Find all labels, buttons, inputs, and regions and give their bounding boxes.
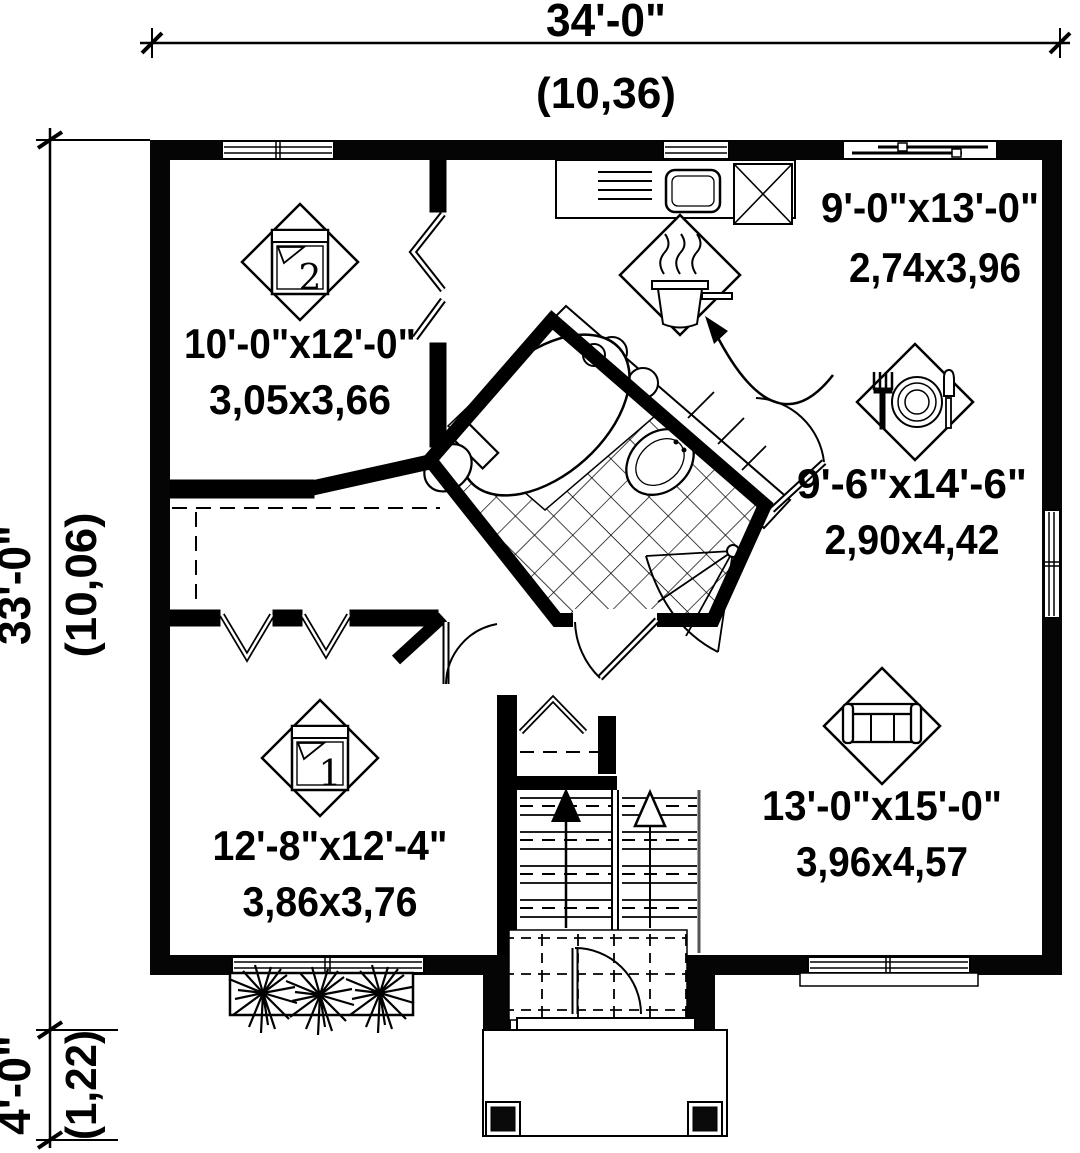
porch-post: [688, 1102, 722, 1136]
bedroom2-window: [222, 141, 334, 159]
pot-rim: [652, 281, 708, 289]
kitchen-label-arrow: [705, 316, 833, 404]
bedroom1-size-imperial: 12'-8"x12'-4": [213, 822, 448, 869]
stove-icon: [734, 164, 792, 224]
kitchen-icon: [620, 215, 740, 335]
dim-left-metric: (10,06): [57, 513, 106, 658]
staircase: [497, 695, 699, 957]
kitchen-sliding-window: [843, 141, 997, 159]
entry-vestibule: [509, 930, 687, 1020]
sofa: [843, 704, 921, 743]
floor-plan-page: 34'-0" (10,36) 33'-0" (10,06) 4'-0" (1,2…: [0, 0, 1080, 1153]
stair-up-arrow-open: [635, 792, 665, 928]
living-size-imperial: 13'-0"x15'-0": [762, 782, 1002, 829]
dining-size-metric: 2,90x4,42: [825, 516, 1000, 563]
dining-icon: [857, 344, 973, 460]
dim-top-imperial: 34'-0": [546, 0, 666, 46]
kitchen-size-imperial: 9'-0"x13'-0": [821, 184, 1039, 231]
front-porch: [483, 1018, 727, 1136]
dim-bottom-left-imperial: 4'-0": [0, 1035, 40, 1135]
dining-size-imperial: 9'-6"x14'-6": [797, 460, 1027, 507]
basement-stair-door: [521, 699, 585, 732]
floor-plan-drawing: 34'-0" (10,36) 33'-0" (10,06) 4'-0" (1,2…: [0, 0, 1080, 1153]
porch-step: [517, 1018, 695, 1030]
bedroom2-door: [413, 214, 443, 338]
dim-bottom-left-metric: (1,22): [57, 1030, 106, 1140]
bedroom1-door: [446, 622, 497, 684]
living-window: [800, 957, 978, 986]
bedroom1-size-metric: 3,86x3,76: [243, 878, 418, 925]
bedroom1-number: 1: [319, 754, 342, 795]
living-size-metric: 3,96x4,57: [796, 838, 968, 885]
living-icon: [824, 668, 940, 784]
window-sill: [800, 973, 978, 986]
bathroom-door: [573, 609, 657, 678]
dim-top-metric: (10,36): [536, 69, 676, 118]
bedroom2-number: 2: [299, 258, 322, 299]
bathroom: [412, 303, 765, 678]
dining-window: [1044, 510, 1060, 618]
bedroom2-size-metric: 3,05x3,66: [209, 376, 391, 423]
entry-tile-floor: [509, 930, 687, 1020]
plate: [892, 377, 942, 427]
cooking-pot: [658, 289, 702, 328]
bedroom1-window: [229, 957, 424, 1035]
kitchen-window-small: [663, 141, 729, 159]
porch-post: [486, 1102, 520, 1136]
pot-handle: [702, 293, 732, 299]
kitchen-size-metric: 2,74x3,96: [849, 244, 1021, 291]
dim-left-imperial: 33'-0": [0, 525, 40, 645]
bedroom2-size-imperial: 10'-0"x12'-0": [184, 320, 416, 367]
